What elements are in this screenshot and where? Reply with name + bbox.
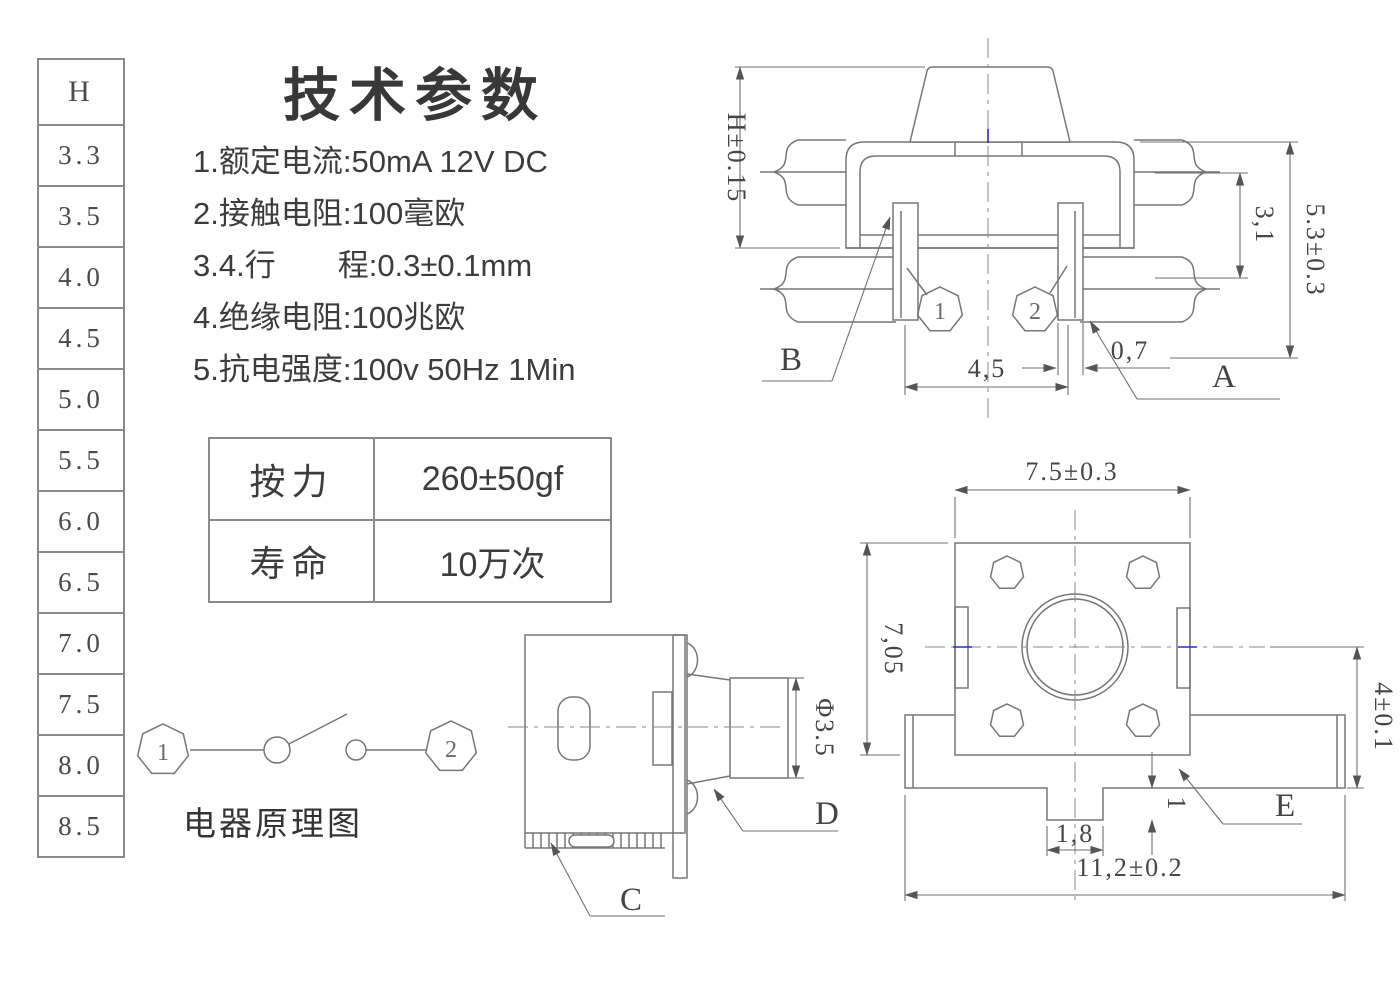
contact-right <box>346 740 366 760</box>
schematic-caption: 电器原理图 <box>183 797 363 845</box>
table-row: 按力 260±50gf <box>210 439 610 519</box>
h-table-row: 3.5 <box>39 185 123 246</box>
switch-lever <box>289 714 347 744</box>
dim-tab-offset: 4±0.1 <box>1369 682 1398 752</box>
corner-hole <box>991 704 1024 736</box>
leader-c <box>551 843 590 916</box>
dim-body-width: 7.5±0.3 <box>1025 457 1118 486</box>
terminal-comb <box>525 833 665 848</box>
front-view-drawing: 1 2 H±0.15 5.3±0.3 3,1 4,5 0,7 B <box>700 25 1400 435</box>
corner-hole <box>991 556 1024 588</box>
label-e: E <box>1275 788 1295 824</box>
h-table-row: 6.5 <box>39 551 123 612</box>
side-body-outline <box>525 635 685 833</box>
pin-2-leg <box>1058 203 1083 320</box>
spec-item: 1.额定电流:50mA 12V DC <box>193 136 733 188</box>
dim-stem-diameter: Φ3.5 <box>810 698 839 758</box>
pin-1-number: 1 <box>934 299 946 325</box>
pin-1-leg <box>893 203 918 320</box>
flange-bump-bottom <box>687 780 698 814</box>
param-value: 10万次 <box>375 521 610 601</box>
h-table-row: 8.5 <box>39 795 123 856</box>
push-button <box>910 67 1070 142</box>
height-options-table: H 3.3 3.5 4.0 4.5 5.0 5.5 6.0 6.5 7.0 7.… <box>37 58 125 858</box>
h-table-row: 5.0 <box>39 368 123 429</box>
switch-body-outline <box>846 142 1134 248</box>
spec-item: 3.4.行 程:0.3±0.1mm <box>193 240 733 292</box>
dim-pin-pitch: 4,5 <box>968 354 1007 383</box>
label-d: D <box>815 796 839 832</box>
dim-total-height: 5.3±0.3 <box>1301 203 1330 296</box>
h-table-row: 7.0 <box>39 612 123 673</box>
side-body-slot <box>558 697 590 760</box>
param-value: 260±50gf <box>375 439 610 519</box>
h-table-row: 5.5 <box>39 429 123 490</box>
h-table-row: 4.5 <box>39 307 123 368</box>
param-label: 寿命 <box>210 521 375 601</box>
dim-tab-depth: 1 <box>1162 797 1191 812</box>
drawing-sheet: H 3.3 3.5 4.0 4.5 5.0 5.5 6.0 6.5 7.0 7.… <box>0 0 1400 1000</box>
dim-tab-width: 1,8 <box>1056 819 1095 848</box>
circuit-schematic: 1 2 <box>118 686 518 796</box>
h-table-row: 7.5 <box>39 673 123 734</box>
button-stem <box>730 678 788 778</box>
side-view-drawing: Φ3.5 D C <box>490 610 850 960</box>
side-notch <box>1177 608 1190 688</box>
label-c: C <box>620 882 642 918</box>
dim-total-width: 11,2±0.2 <box>1076 853 1183 882</box>
label-a: A <box>1212 359 1236 395</box>
params-table: 按力 260±50gf 寿命 10万次 <box>208 437 612 603</box>
terminal-1-number: 1 <box>157 740 169 766</box>
contact-left <box>264 737 290 763</box>
spec-item: 5.抗电强度:100v 50Hz 1Min <box>193 344 733 396</box>
dim-pin-length: 3,1 <box>1250 206 1279 245</box>
plate-notch <box>653 692 672 765</box>
h-table-row: 4.0 <box>39 246 123 307</box>
label-b: B <box>780 342 802 378</box>
pin-2-number: 2 <box>1029 299 1041 325</box>
flange-bump-top <box>687 643 698 677</box>
h-table-row: 6.0 <box>39 490 123 551</box>
corner-hole <box>1127 704 1160 736</box>
spec-item: 4.绝缘电阻:100兆欧 <box>193 292 733 344</box>
dim-body-depth: 7,05 <box>879 622 908 676</box>
h-table-row: 8.0 <box>39 734 123 795</box>
spec-item: 2.接触电阻:100毫欧 <box>193 188 733 240</box>
dim-pin-width: 0,7 <box>1111 336 1150 365</box>
table-row: 寿命 10万次 <box>210 519 610 601</box>
dim-height: H±0.15 <box>722 113 751 204</box>
terminal-2-number: 2 <box>445 737 457 763</box>
spec-list: 1.额定电流:50mA 12V DC 2.接触电阻:100毫欧 3.4.行 程:… <box>193 136 733 396</box>
page-title: 技术参数 <box>283 50 547 132</box>
h-table-row: 3.3 <box>39 124 123 185</box>
top-view-drawing: 7.5±0.3 7,05 4±0.1 1 1,8 11,2±0.2 E <box>850 440 1400 910</box>
leader-d <box>714 789 743 831</box>
param-label: 按力 <box>210 439 375 519</box>
h-table-header: H <box>39 60 123 124</box>
corner-hole <box>1127 556 1160 588</box>
